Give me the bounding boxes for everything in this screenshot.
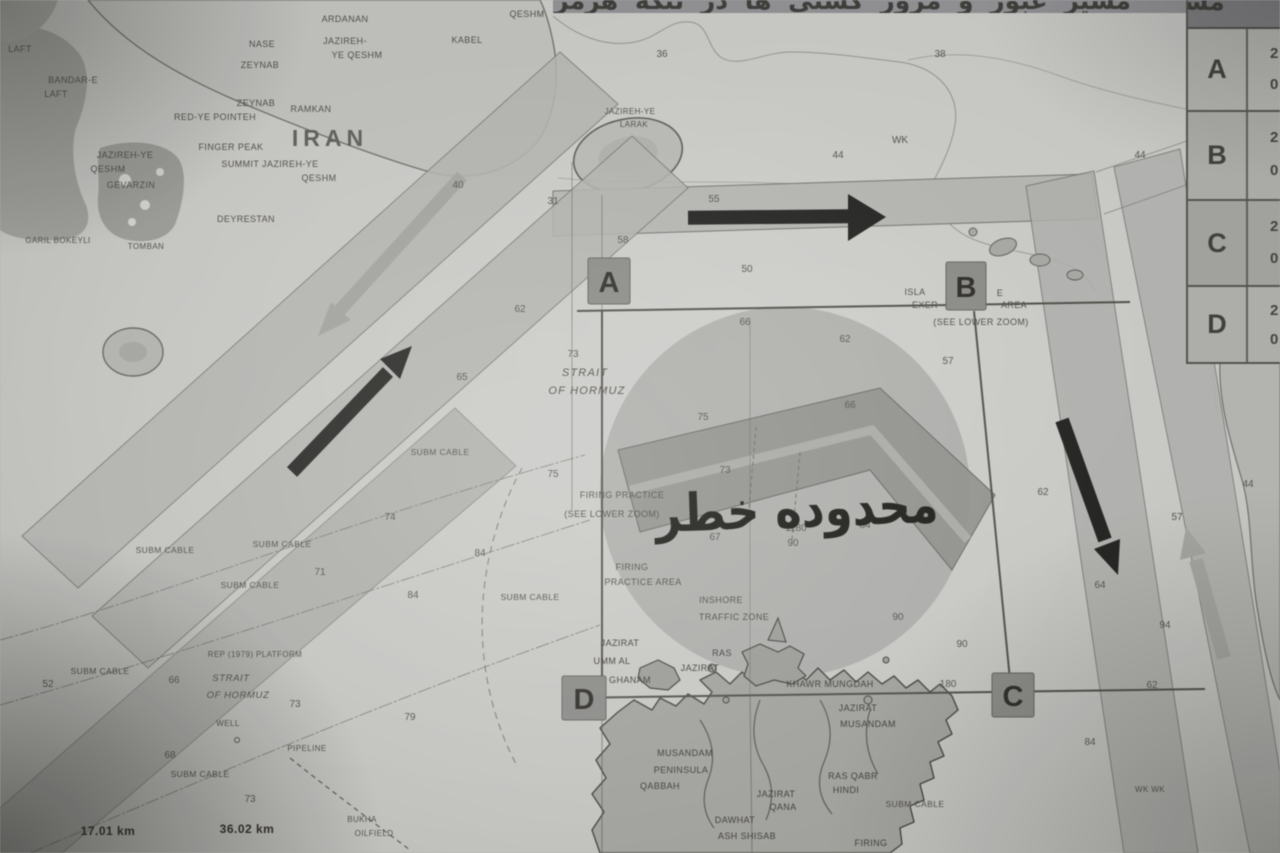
map-label: SUBM CABLE <box>501 592 560 602</box>
map-label: MUSANDAM <box>840 719 896 729</box>
map-label: GARIL BOKEYLI <box>25 236 90 245</box>
map-label: OF HORMUZ <box>207 690 270 701</box>
depth-sounding: 84 <box>407 590 419 601</box>
corner-marker-letter: B <box>956 272 977 304</box>
map-label: SUBM CABLE <box>136 545 195 555</box>
depth-sounding: 62 <box>839 334 851 345</box>
nautical-chart: A B C D 363844WK44WK31555850406265736662… <box>0 0 1280 853</box>
table-cell-letter: C <box>1188 201 1248 285</box>
map-label: EXER <box>912 300 938 310</box>
eastbound-arrow-shaft <box>688 209 850 224</box>
map-label: SUBM CABLE <box>411 447 470 457</box>
depth-sounding: 55 <box>708 194 720 205</box>
depth-sounding: 180 <box>940 679 957 690</box>
table-cell-coords: 2 0 <box>1248 112 1280 199</box>
map-label: JAZIRAT <box>601 638 640 648</box>
map-label: QESHM <box>509 9 544 19</box>
map-label: QANA <box>769 802 796 812</box>
salt-flat-dot <box>156 168 164 176</box>
banner-title-text: مسیر عبور و مرور کشتی ها در تنگه هرمز <box>554 0 1131 13</box>
table-cell-letter: B <box>1188 112 1248 199</box>
depth-sounding: 62 <box>1037 487 1049 498</box>
map-label: (SEE LOWER ZOOM) <box>933 317 1028 327</box>
map-label: STRAIT <box>212 673 250 684</box>
map-label: REP (1979) PLATFORM <box>208 650 302 659</box>
map-label: PRACTICE AREA <box>604 577 681 587</box>
islet <box>969 228 977 236</box>
coord-fragment: 2 <box>1270 45 1278 62</box>
map-label: JAZIRAT <box>839 703 878 713</box>
map-label: WELL <box>216 719 240 728</box>
map-label: JAZIREH-YE <box>97 150 154 160</box>
map-label: GEVARZIN <box>107 180 156 190</box>
table-row: B 2 0 <box>1188 112 1280 201</box>
map-label: INSHORE <box>699 595 743 605</box>
chart-photo: A B C D 363844WK44WK31555850406265736662… <box>0 0 1280 853</box>
map-label: OF HORMUZ <box>548 385 625 397</box>
table-cell-coords: 2 0 <box>1248 29 1280 110</box>
map-label: DEYRESTAN <box>217 214 275 224</box>
depth-sounding: 73 <box>567 349 579 360</box>
map-label: RAMKAN <box>291 104 332 114</box>
table-cell-letter: D <box>1188 287 1248 362</box>
map-label: OILFIELD <box>355 829 394 838</box>
corner-marker-letter: D <box>574 684 595 716</box>
map-label: AREA <box>1001 300 1027 310</box>
depth-sounding: 62 <box>514 304 526 315</box>
map-label: WK WK <box>1135 785 1165 794</box>
map-label: FIRING PRACTICE <box>580 490 665 500</box>
map-label: KHAWR MUNGDAH <box>786 679 873 689</box>
depth-sounding: 64 <box>1094 580 1106 591</box>
depth-sounding: 73 <box>719 465 731 476</box>
depth-sounding: 73 <box>289 699 301 710</box>
coord-fragment: 0 <box>1270 250 1278 267</box>
map-label: JAZIREH-YE <box>605 107 656 116</box>
map-label: (SEE LOWER ZOOM) <box>564 509 659 519</box>
depth-sounding: 36 <box>656 49 668 60</box>
map-label: LAFT <box>44 89 68 99</box>
map-label: BANDAR-E <box>48 75 98 85</box>
depth-sounding: 52 <box>42 679 54 690</box>
map-label: SUMMIT JAZIREH-YE <box>221 159 318 169</box>
small-island-interior <box>119 342 147 362</box>
depth-sounding: 57 <box>1171 512 1183 523</box>
map-label: PENINSULA <box>654 765 709 775</box>
map-label: PIPELINE <box>287 744 326 753</box>
salt-flat-dot <box>140 200 150 210</box>
coord-fragment: 2 <box>1270 302 1278 319</box>
depth-sounding: 62 <box>1146 680 1158 691</box>
depth-sounding: 66 <box>844 400 856 411</box>
coord-fragment: 0 <box>1270 76 1278 93</box>
depth-sounding: 44 <box>1242 479 1254 490</box>
salt-flat-dot <box>128 218 136 226</box>
map-label: SUBM CABLE <box>221 580 280 590</box>
map-label: QESHM <box>90 164 125 174</box>
map-label: RAS QABR <box>828 771 878 781</box>
corner-coordinates-table: مسیر عبور و مرور کشتی ها در تنگه هرمز A … <box>1186 0 1280 364</box>
map-label: GHANAM <box>609 675 651 685</box>
map-label: RAS <box>712 648 732 658</box>
map-label: QESHM <box>301 173 336 183</box>
depth-sounding: 65 <box>456 372 468 383</box>
coord-fragment: 2 <box>1270 129 1278 146</box>
map-label: TRAFFIC ZONE <box>699 612 769 622</box>
map-label: LAFT <box>8 44 32 54</box>
map-label: FIRING <box>616 562 649 572</box>
map-label: UMM AL <box>594 656 631 666</box>
depth-sounding: 57 <box>942 356 954 367</box>
map-label: IRAN <box>292 125 368 151</box>
depth-sounding: 68 <box>164 750 176 761</box>
depth-sounding: 44 <box>1134 150 1146 161</box>
small-island <box>103 328 163 376</box>
depth-sounding: 90 <box>892 612 904 623</box>
map-label: LARAK <box>620 120 648 129</box>
map-label: RED-YE POINTEH <box>174 112 256 122</box>
map-label: JAZIRAT <box>757 789 796 799</box>
table-row: A 2 0 <box>1188 29 1280 112</box>
map-label: SUBM CABLE <box>171 769 230 779</box>
danger-zone-label: محدوده خطر <box>652 475 940 545</box>
map-label: JAZIRAT <box>681 663 720 673</box>
corner-marker-a: A <box>588 258 630 304</box>
depth-sounding: 66 <box>739 317 751 328</box>
map-label: YE QESHM <box>332 50 383 60</box>
depth-sounding: 84 <box>474 548 486 559</box>
depth-sounding: 66 <box>168 675 180 686</box>
islet <box>1067 270 1083 280</box>
map-label: SUBM CABLE <box>886 799 945 809</box>
depth-sounding: 71 <box>314 567 326 578</box>
depth-sounding: 31 <box>547 196 559 207</box>
map-label: 17.01 km <box>81 824 136 838</box>
depth-sounding: 84 <box>1084 737 1096 748</box>
map-label: DAWHAT <box>715 815 755 825</box>
table-header-text: مسیر عبور و مرور کشتی ها در تنگه هرمز <box>1188 0 1225 16</box>
corner-marker-letter: C <box>1003 681 1024 713</box>
map-label: SUBM CABLE <box>71 666 130 676</box>
map-label: ASH SHISAB <box>718 831 776 841</box>
map-label: ISLA <box>904 287 925 297</box>
islet <box>1030 254 1050 266</box>
table-row: C 2 0 <box>1188 201 1280 287</box>
map-label: 36.02 km <box>220 822 275 836</box>
map-label: NASE <box>249 39 275 49</box>
map-label: STRAIT <box>562 367 608 379</box>
corner-marker-c: C <box>992 673 1034 717</box>
corner-marker-letter: A <box>599 267 620 299</box>
depth-sounding: 94 <box>1159 620 1171 631</box>
map-label: HINDI <box>833 785 860 795</box>
depth-sounding: 44 <box>832 150 844 161</box>
map-label: ARDANAN <box>322 14 369 24</box>
map-label: FINGER PEAK <box>199 142 264 152</box>
depth-sounding: 75 <box>697 412 709 423</box>
islet <box>723 697 729 703</box>
table-cell-coords: 2 0 <box>1248 201 1280 285</box>
title-banner: مسیر عبور و مرور کشتی ها در تنگه هرمز <box>553 0 1186 13</box>
depth-sounding: 50 <box>741 264 753 275</box>
depth-sounding: WK <box>892 135 908 146</box>
coord-fragment: 0 <box>1270 162 1278 179</box>
depth-sounding: 75 <box>547 469 559 480</box>
map-label: ZEYNAB <box>237 98 275 108</box>
depth-sounding: 73 <box>244 794 256 805</box>
map-label: KABEL <box>451 35 482 45</box>
table-cell-coords: 2 0 <box>1248 287 1280 362</box>
map-label: SUBM CABLE <box>253 539 312 549</box>
islet <box>883 657 889 663</box>
map-label: E <box>997 288 1003 298</box>
depth-sounding: 74 <box>384 512 396 523</box>
depth-sounding: 90 <box>956 639 968 650</box>
corner-marker-d: D <box>562 676 606 720</box>
coord-fragment: 2 <box>1270 218 1278 235</box>
map-label: FIRING <box>855 838 888 848</box>
map-label: ZEYNAB <box>241 60 279 70</box>
corner-marker-b: B <box>946 262 986 310</box>
map-label: BUKHA <box>347 815 377 824</box>
map-label: JAZIREH- <box>323 36 367 46</box>
map-label: MUSANDAM <box>657 748 713 758</box>
table-cell-letter: A <box>1188 29 1248 110</box>
depth-sounding: 38 <box>934 49 946 60</box>
table-row: D 2 0 <box>1188 287 1280 364</box>
depth-sounding: 40 <box>452 180 464 191</box>
table-header: مسیر عبور و مرور کشتی ها در تنگه هرمز <box>1188 0 1280 29</box>
depth-sounding: 58 <box>617 235 629 246</box>
depth-sounding: 79 <box>404 712 416 723</box>
coord-fragment: 0 <box>1270 331 1278 348</box>
map-label: TOMBAN <box>128 242 164 251</box>
map-label: QABBAH <box>640 781 680 791</box>
